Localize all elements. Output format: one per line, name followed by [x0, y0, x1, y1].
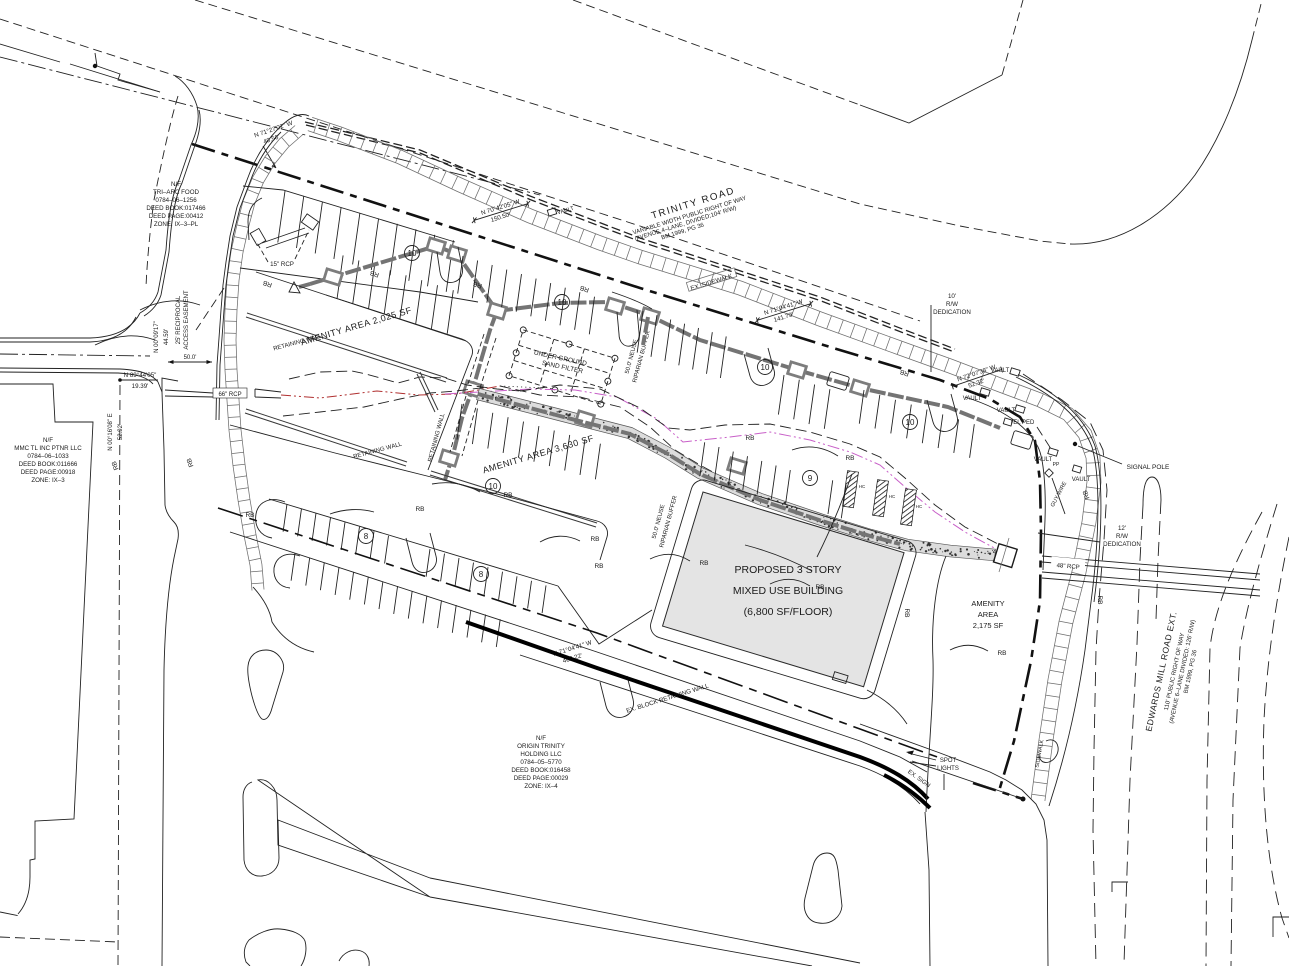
svg-text:TEL PED: TEL PED [1010, 420, 1035, 426]
svg-text:MMC TL INC PTNR LLC: MMC TL INC PTNR LLC [14, 445, 82, 452]
svg-text:RB: RB [1096, 595, 1103, 604]
svg-text:25' RECIPROCAL: 25' RECIPROCAL [176, 295, 182, 344]
svg-text:DEED BOOK:011666: DEED BOOK:011666 [19, 461, 78, 468]
svg-text:N 00°09'17": N 00°09'17" [154, 321, 160, 353]
svg-text:DEED PAGE:00029: DEED PAGE:00029 [514, 775, 569, 782]
svg-text:RB: RB [594, 563, 603, 570]
svg-text:N/F: N/F [171, 181, 181, 188]
svg-text:MIXED USE BUILDING: MIXED USE BUILDING [733, 585, 843, 597]
svg-text:(6,800 SF/FLOOR): (6,800 SF/FLOOR) [744, 606, 833, 618]
svg-text:0784–05–5770: 0784–05–5770 [520, 759, 562, 766]
svg-text:ORIGIN TRINITY: ORIGIN TRINITY [517, 743, 565, 750]
svg-text:SIGNAL POLE: SIGNAL POLE [1127, 464, 1170, 471]
svg-text:9: 9 [808, 474, 813, 483]
svg-text:SPOT: SPOT [940, 758, 957, 764]
svg-text:0784–06–1033: 0784–06–1033 [27, 453, 69, 460]
svg-text:R/W: R/W [1116, 533, 1128, 540]
svg-text:8: 8 [364, 532, 369, 541]
svg-text:12': 12' [1118, 525, 1126, 532]
svg-text:10: 10 [761, 363, 770, 372]
svg-text:N/F: N/F [536, 735, 546, 742]
svg-text:8: 8 [479, 570, 484, 579]
svg-text:AMENITY: AMENITY [971, 599, 1004, 608]
svg-text:VAULT: VAULT [1034, 457, 1053, 463]
svg-text:ZONE: IX–3: ZONE: IX–3 [31, 477, 65, 484]
svg-text:52.92': 52.92' [118, 424, 124, 440]
svg-text:ZONE: IX–4: ZONE: IX–4 [524, 783, 558, 790]
svg-text:19.39': 19.39' [132, 383, 149, 390]
svg-text:N 00°16'08" E: N 00°16'08" E [108, 413, 114, 450]
svg-text:PROPOSED 3 STORY: PROPOSED 3 STORY [735, 564, 842, 576]
svg-text:VAULT: VAULT [991, 368, 1010, 374]
svg-text:R/W: R/W [946, 301, 958, 308]
svg-text:DEED BOOK:016458: DEED BOOK:016458 [511, 767, 571, 774]
svg-text:RB: RB [590, 536, 599, 543]
svg-text:RB: RB [815, 584, 824, 591]
svg-text:PP: PP [1053, 462, 1060, 468]
svg-text:TRI–ARC FOOD: TRI–ARC FOOD [153, 189, 200, 196]
svg-text:VAULT: VAULT [1072, 477, 1091, 483]
svg-text:HC: HC [859, 484, 866, 489]
svg-text:RB: RB [845, 455, 854, 462]
svg-text:0784–06–1256: 0784–06–1256 [155, 197, 197, 204]
svg-text:15" RCP: 15" RCP [270, 261, 294, 268]
svg-text:N/F: N/F [43, 437, 53, 444]
svg-text:RB: RB [903, 608, 910, 617]
svg-text:VAULT: VAULT [963, 396, 982, 402]
svg-text:DEDICATION: DEDICATION [933, 309, 971, 316]
svg-text:10: 10 [558, 298, 567, 307]
svg-text:ACCESS EASEMENT: ACCESS EASEMENT [184, 290, 190, 350]
svg-text:50.0': 50.0' [184, 355, 197, 361]
svg-text:DEED PAGE:00918: DEED PAGE:00918 [21, 469, 76, 476]
svg-text:10: 10 [906, 418, 915, 427]
svg-text:ZONE: IX–3–PL: ZONE: IX–3–PL [154, 221, 199, 228]
svg-text:HOLDING LLC: HOLDING LLC [520, 751, 562, 758]
svg-text:AREA: AREA [978, 610, 998, 619]
svg-text:N 89°44'05": N 89°44'05" [124, 372, 157, 379]
svg-text:10': 10' [948, 293, 956, 300]
svg-text:66" RCP: 66" RCP [218, 392, 241, 398]
svg-text:DEED BOOK:017466: DEED BOOK:017466 [146, 205, 206, 212]
svg-text:2,175 SF: 2,175 SF [973, 621, 1004, 630]
svg-text:HC: HC [916, 504, 923, 509]
svg-text:RB: RB [745, 435, 754, 442]
svg-text:RB: RB [245, 512, 254, 519]
svg-text:RB: RB [503, 492, 512, 499]
svg-text:VAULT: VAULT [997, 408, 1016, 414]
svg-text:DEDICATION: DEDICATION [1103, 541, 1141, 548]
svg-text:44.59': 44.59' [164, 329, 170, 345]
svg-text:HC: HC [889, 494, 896, 499]
svg-text:10: 10 [408, 249, 417, 258]
svg-text:DEED PAGE:00412: DEED PAGE:00412 [149, 213, 204, 220]
svg-text:RB: RB [415, 506, 424, 513]
svg-text:RB: RB [997, 650, 1006, 657]
svg-text:RB: RB [699, 560, 708, 567]
